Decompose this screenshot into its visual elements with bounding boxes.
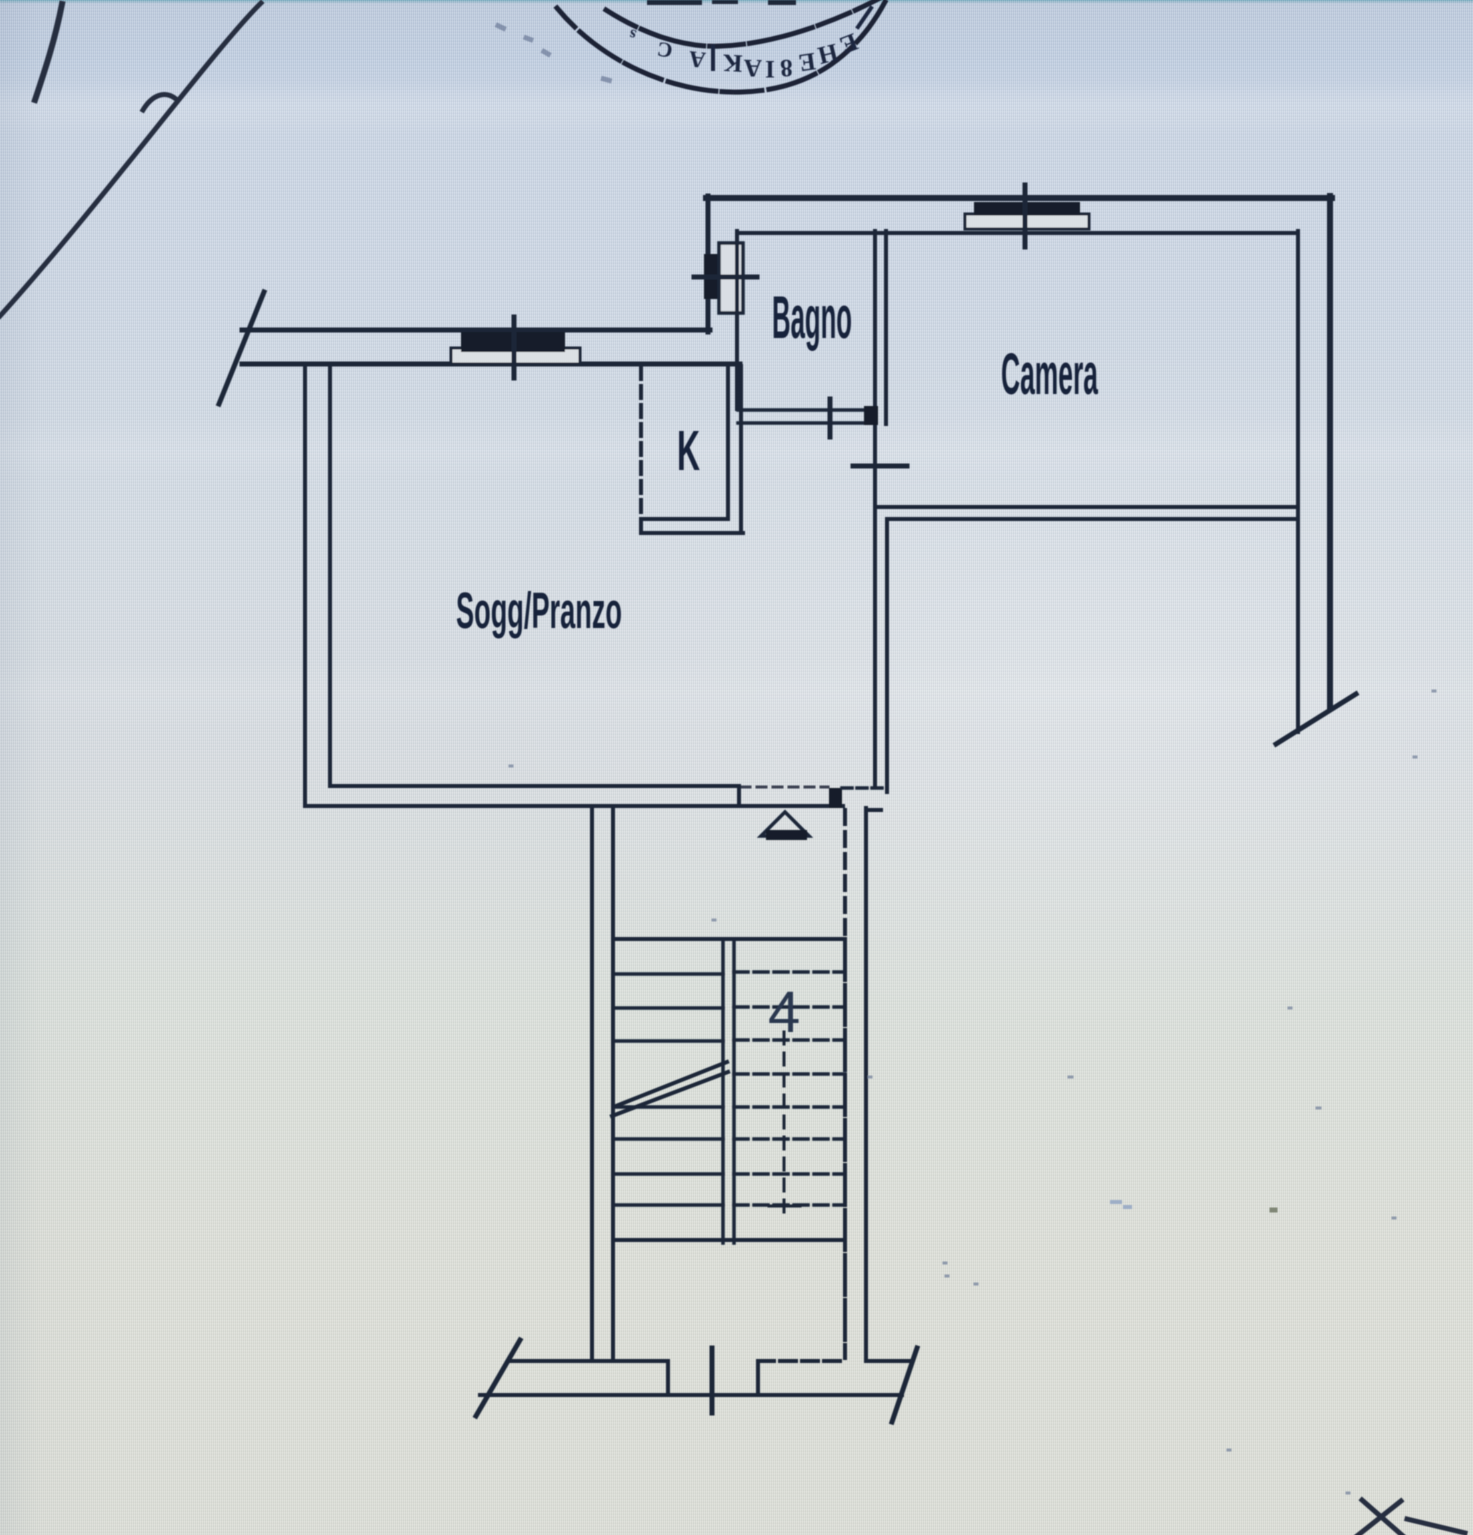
- svg-text:I: I: [765, 55, 775, 82]
- svg-text:H: H: [815, 38, 841, 69]
- svg-text:C: C: [655, 37, 674, 63]
- svg-text:A: A: [744, 54, 763, 81]
- svg-text:E: E: [797, 47, 817, 76]
- svg-text:8: 8: [779, 54, 793, 82]
- svg-text:K: K: [722, 48, 743, 76]
- svg-text:Bagno: Bagno: [772, 284, 852, 351]
- svg-text:4: 4: [768, 980, 800, 1045]
- svg-text:K: K: [677, 419, 700, 483]
- svg-text:s: s: [627, 25, 638, 43]
- svg-text:Sogg/Pranzo: Sogg/Pranzo: [456, 582, 622, 639]
- svg-text:A: A: [687, 46, 707, 73]
- svg-text:E: E: [836, 27, 861, 58]
- svg-text:Camera: Camera: [1001, 342, 1098, 407]
